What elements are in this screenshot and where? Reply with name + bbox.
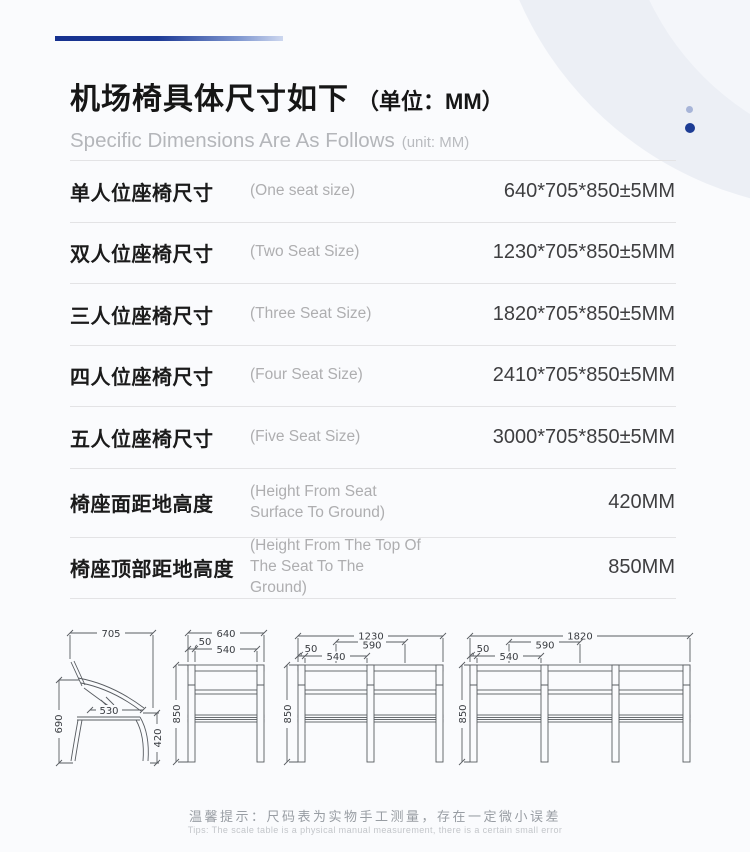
spec-label-zh: 单人位座椅尺寸 bbox=[70, 177, 250, 206]
side-depth-dim: 705 bbox=[101, 629, 120, 640]
drawing-front-single: 640 50 540 850 bbox=[171, 628, 267, 765]
single-seat-width-dim: 540 bbox=[216, 645, 235, 656]
spec-label-en: (One seat size) bbox=[250, 181, 422, 202]
spec-label-en: (Two Seat Size) bbox=[250, 242, 422, 263]
spec-row-two-seat: 双人位座椅尺寸 (Two Seat Size) 1230*705*850±5MM bbox=[70, 223, 676, 285]
single-armrest-dim: 50 bbox=[199, 637, 212, 648]
drawing-front-double: 1230 590 50 540 850 bbox=[282, 631, 446, 765]
spec-row-seat-surface-height: 椅座面距地高度 (Height From Seat Surface To Gro… bbox=[70, 469, 676, 538]
page-subtitle-en: Specific Dimensions Are As Follows bbox=[70, 131, 395, 152]
spec-row-four-seat: 四人位座椅尺寸 (Four Seat Size) 2410*705*850±5M… bbox=[70, 346, 676, 408]
page-title-zh: 机场椅具体尺寸如下 bbox=[70, 85, 349, 115]
footer-tip-zh: 温馨提示：尺码表为实物手工测量，存在一定微小误差 bbox=[0, 806, 750, 825]
accent-line bbox=[55, 36, 283, 41]
side-height-dim: 690 bbox=[54, 714, 65, 733]
page-subtitle: Specific Dimensions Are As Follows (unit… bbox=[70, 131, 469, 152]
spec-row-one-seat: 单人位座椅尺寸 (One seat size) 640*705*850±5MM bbox=[70, 161, 676, 223]
triple-height-dim: 850 bbox=[458, 704, 469, 723]
spec-row-seat-top-height: 椅座顶部距地高度 (Height From The Top Of The Sea… bbox=[70, 538, 676, 600]
double-pitch-dim: 590 bbox=[362, 641, 381, 652]
spec-label-en: (Five Seat Size) bbox=[250, 427, 422, 448]
spec-label-en: (Three Seat Size) bbox=[250, 304, 422, 325]
spec-value: 2410*705*850±5MM bbox=[422, 364, 676, 387]
spec-label-zh: 三人位座椅尺寸 bbox=[70, 300, 250, 329]
spec-row-three-seat: 三人位座椅尺寸 (Three Seat Size) 1820*705*850±5… bbox=[70, 284, 676, 346]
spec-label-zh: 双人位座椅尺寸 bbox=[70, 238, 250, 267]
spec-value: 1230*705*850±5MM bbox=[422, 241, 676, 264]
spec-label-zh: 五人位座椅尺寸 bbox=[70, 423, 250, 452]
double-armrest-dim: 50 bbox=[305, 644, 318, 655]
decor-dot-light bbox=[686, 106, 693, 113]
side-seat-height-dim: 420 bbox=[153, 728, 164, 747]
spec-table: 单人位座椅尺寸 (One seat size) 640*705*850±5MM … bbox=[70, 160, 676, 599]
page-subtitle-unit: (unit: MM) bbox=[402, 135, 470, 150]
spec-row-five-seat: 五人位座椅尺寸 (Five Seat Size) 3000*705*850±5M… bbox=[70, 407, 676, 469]
spec-value: 850MM bbox=[422, 556, 676, 579]
triple-seat-width-dim: 540 bbox=[499, 652, 518, 663]
spec-label-en: (Height From The Top Of The Seat To The … bbox=[250, 536, 422, 599]
spec-label-en: (Height From Seat Surface To Ground) bbox=[250, 482, 422, 524]
triple-width-dim: 1820 bbox=[567, 632, 592, 643]
single-width-dim: 640 bbox=[216, 629, 235, 640]
spec-label-zh: 四人位座椅尺寸 bbox=[70, 361, 250, 390]
double-seat-width-dim: 540 bbox=[326, 652, 345, 663]
triple-armrest-dim: 50 bbox=[477, 644, 490, 655]
page-title: 机场椅具体尺寸如下 （单位：MM） bbox=[70, 85, 504, 115]
spec-label-zh: 椅座顶部距地高度 bbox=[70, 553, 250, 582]
drawing-side-view: 705 530 690 420 bbox=[53, 628, 164, 766]
side-seat-depth-dim: 530 bbox=[99, 706, 118, 717]
triple-pitch-dim: 590 bbox=[535, 641, 554, 652]
spec-value: 1820*705*850±5MM bbox=[422, 303, 676, 326]
single-height-dim: 850 bbox=[172, 704, 183, 723]
spec-label-zh: 椅座面距地高度 bbox=[70, 488, 250, 517]
footer-tip-en: Tips: The scale table is a physical manu… bbox=[0, 825, 750, 835]
spec-label-en: (Four Seat Size) bbox=[250, 365, 422, 386]
page-title-unit: （单位：MM） bbox=[357, 91, 504, 113]
spec-value: 640*705*850±5MM bbox=[422, 180, 676, 203]
spec-sheet-page: 机场椅具体尺寸如下 （单位：MM） Specific Dimensions Ar… bbox=[0, 0, 750, 852]
spec-value: 420MM bbox=[422, 491, 676, 514]
spec-value: 3000*705*850±5MM bbox=[422, 426, 676, 449]
double-height-dim: 850 bbox=[283, 704, 294, 723]
technical-drawings: 705 530 690 420 bbox=[0, 612, 750, 782]
decor-dot-dark bbox=[685, 123, 695, 133]
drawing-front-triple: 1820 590 50 540 850 bbox=[457, 631, 693, 765]
